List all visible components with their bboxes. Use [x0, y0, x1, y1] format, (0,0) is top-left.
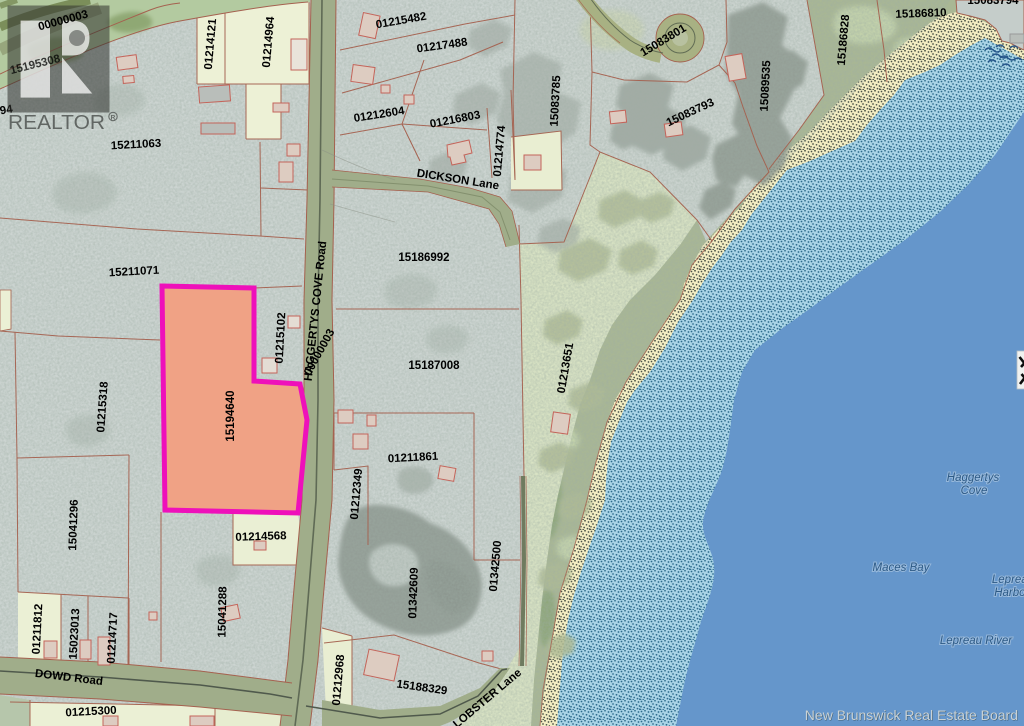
svg-text:01342609: 01342609: [407, 567, 421, 619]
svg-text:15083794: 15083794: [967, 0, 1019, 7]
svg-text:Harbour: Harbour: [994, 587, 1024, 599]
svg-text:15041296: 15041296: [67, 499, 81, 551]
svg-text:Lepreau: Lepreau: [992, 574, 1024, 586]
svg-text:15194640: 15194640: [225, 390, 237, 441]
svg-text:New Brunswick Real Estate Boar: New Brunswick Real Estate Board: [805, 707, 1018, 723]
svg-text:15186810: 15186810: [895, 7, 947, 21]
svg-text:R: R: [111, 115, 116, 122]
svg-text:15186992: 15186992: [398, 252, 449, 264]
svg-text:01214568: 01214568: [235, 530, 287, 544]
svg-text:REALTOR: REALTOR: [8, 111, 105, 134]
svg-text:Maces Bay: Maces Bay: [873, 562, 931, 574]
svg-text:Cove: Cove: [961, 485, 988, 497]
svg-text:Haggertys: Haggertys: [947, 472, 1000, 484]
svg-text:Lepreau River: Lepreau River: [940, 635, 1013, 647]
svg-text:15041288: 15041288: [217, 586, 230, 638]
svg-text:15187008: 15187008: [408, 360, 460, 372]
